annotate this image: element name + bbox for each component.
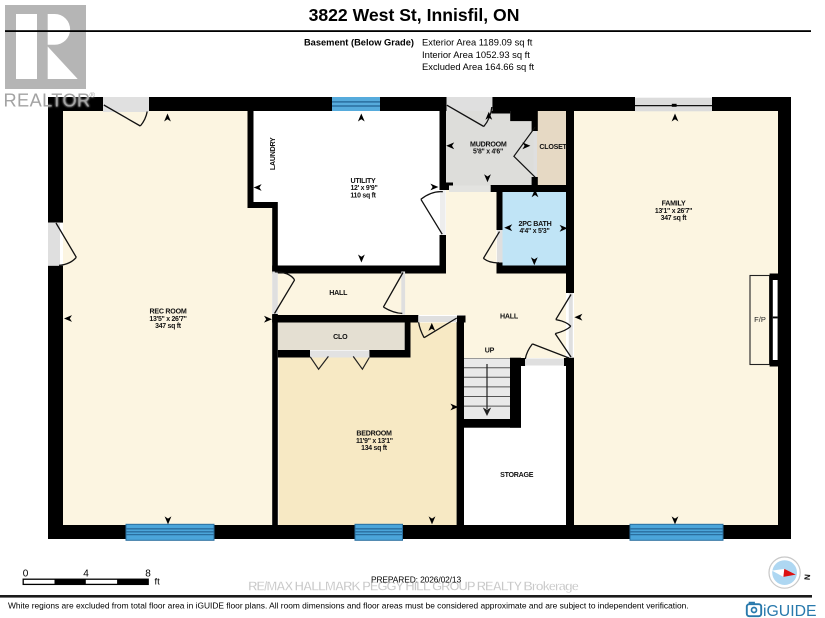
svg-text:CLO: CLO	[333, 333, 348, 341]
svg-text:White regions are excluded fro: White regions are excluded from total fl…	[8, 601, 689, 611]
svg-text:12' x 9'9": 12' x 9'9"	[350, 185, 377, 192]
svg-text:UTILITY: UTILITY	[350, 177, 376, 185]
svg-text:PREPARED: 2026/02/13: PREPARED: 2026/02/13	[371, 575, 461, 585]
svg-text:STORAGE: STORAGE	[500, 471, 534, 479]
svg-text:Exterior Area 1189.09 sq ft: Exterior Area 1189.09 sq ft	[422, 37, 533, 48]
svg-text:Basement (Below Grade): Basement (Below Grade)	[304, 38, 414, 48]
svg-text:3822 West St, Innisfil, ON: 3822 West St, Innisfil, ON	[309, 5, 520, 25]
svg-text:FAMILY: FAMILY	[662, 200, 686, 208]
svg-text:8: 8	[145, 568, 151, 579]
svg-text:MUDROOM: MUDROOM	[470, 141, 507, 149]
svg-text:REC ROOM: REC ROOM	[149, 308, 186, 316]
svg-text:347 sq ft: 347 sq ft	[155, 323, 182, 330]
svg-text:110 sq ft: 110 sq ft	[350, 193, 376, 200]
svg-text:134 sq ft: 134 sq ft	[361, 445, 388, 452]
svg-text:Interior Area 1052.93 sq ft: Interior Area 1052.93 sq ft	[422, 49, 530, 60]
svg-text:4: 4	[83, 568, 89, 579]
svg-text:5'8" x 4'6": 5'8" x 4'6"	[473, 149, 503, 156]
svg-text:13'1" x 26'7": 13'1" x 26'7"	[655, 208, 692, 215]
svg-text:iGUIDE: iGUIDE	[763, 603, 817, 618]
svg-text:0: 0	[23, 568, 29, 579]
svg-text:F/P: F/P	[754, 315, 766, 324]
svg-text:11'9" x 13'1": 11'9" x 13'1"	[356, 438, 393, 445]
svg-text:2PC BATH: 2PC BATH	[519, 220, 552, 228]
svg-text:347 sq ft: 347 sq ft	[661, 215, 688, 222]
svg-text:ft: ft	[155, 577, 161, 588]
svg-text:BEDROOM: BEDROOM	[356, 430, 392, 438]
svg-text:4'4" x 5'3": 4'4" x 5'3"	[519, 228, 549, 235]
svg-text:HALL: HALL	[329, 289, 348, 297]
svg-text:HALL: HALL	[500, 313, 519, 321]
svg-text:13'5" x 26'7": 13'5" x 26'7"	[149, 316, 186, 323]
svg-text:N: N	[802, 574, 811, 581]
svg-text:LAUNDRY: LAUNDRY	[269, 137, 277, 170]
svg-text:REALTOR: REALTOR	[4, 91, 91, 111]
svg-text:CLOSET: CLOSET	[539, 143, 567, 151]
svg-text:UP: UP	[485, 346, 495, 354]
svg-text:Excluded Area 164.66 sq ft: Excluded Area 164.66 sq ft	[422, 61, 534, 72]
svg-text:®: ®	[90, 91, 96, 100]
